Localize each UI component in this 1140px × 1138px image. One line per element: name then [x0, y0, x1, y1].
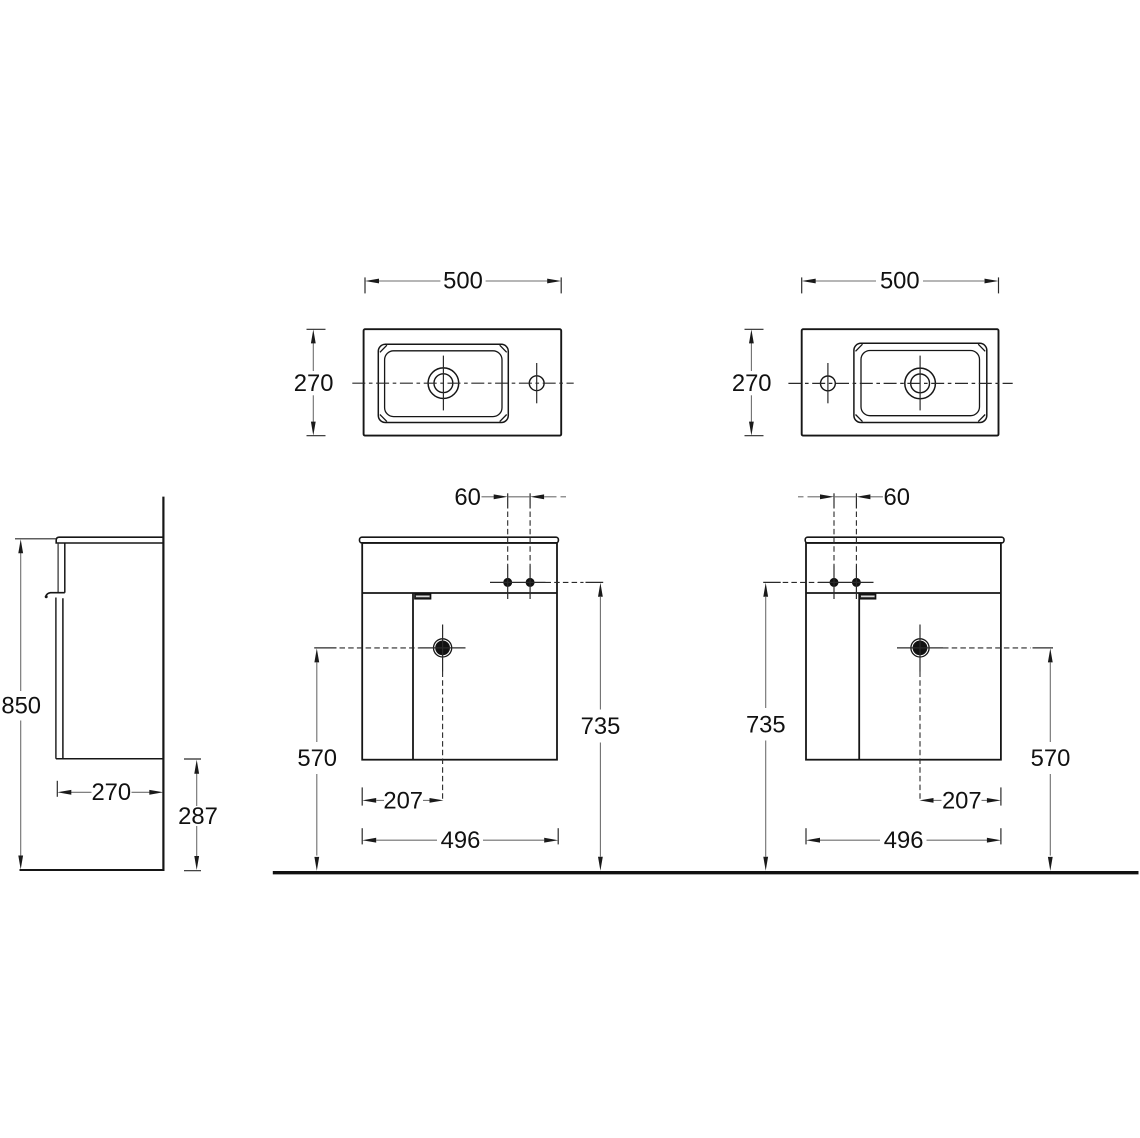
svg-text:570: 570 — [297, 745, 337, 772]
svg-text:207: 207 — [383, 787, 423, 814]
svg-text:496: 496 — [441, 827, 481, 854]
svg-text:500: 500 — [443, 268, 483, 295]
svg-text:207: 207 — [942, 787, 982, 814]
svg-text:270: 270 — [732, 370, 772, 397]
svg-text:270: 270 — [91, 779, 131, 806]
svg-text:735: 735 — [581, 713, 621, 740]
svg-text:850: 850 — [1, 693, 41, 720]
svg-text:60: 60 — [454, 484, 480, 511]
svg-text:735: 735 — [746, 711, 786, 738]
svg-text:287: 287 — [178, 803, 218, 830]
svg-text:496: 496 — [884, 827, 924, 854]
svg-text:500: 500 — [880, 268, 920, 295]
svg-text:570: 570 — [1031, 745, 1071, 772]
svg-text:60: 60 — [884, 484, 910, 511]
svg-text:270: 270 — [294, 370, 334, 397]
